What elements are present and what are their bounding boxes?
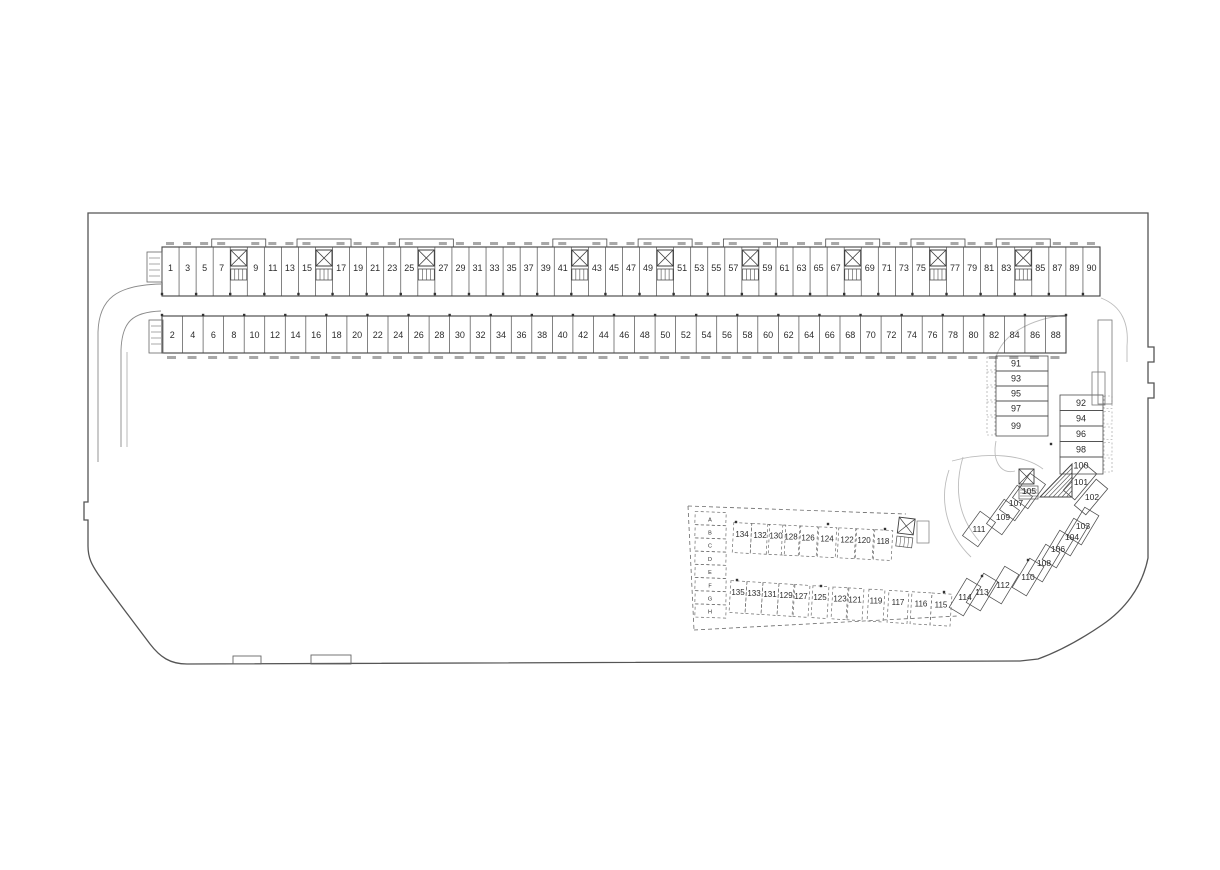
- column-marker: [263, 293, 265, 295]
- micro-text-mark: [537, 356, 546, 359]
- bottom-parking-row: 2468101214161820222426283032343638404244…: [149, 314, 1067, 359]
- column-marker: [943, 591, 945, 593]
- stall-number: 28: [434, 330, 444, 340]
- stall-number: 11: [268, 263, 277, 273]
- micro-text-mark: [229, 356, 238, 359]
- stall-number: 95: [1011, 389, 1021, 399]
- micro-text-mark: [831, 242, 839, 245]
- micro-text-mark: [507, 242, 515, 245]
- micro-text-mark: [578, 356, 587, 359]
- micro-text-mark: [916, 242, 924, 245]
- column-marker: [161, 293, 163, 295]
- stall-number: 82: [989, 330, 999, 340]
- stall-number: 29: [455, 263, 465, 273]
- stall-number: 38: [537, 330, 547, 340]
- column-marker: [243, 314, 245, 316]
- micro-text-mark: [434, 356, 443, 359]
- service-cell: [987, 402, 995, 415]
- micro-text-mark: [200, 242, 208, 245]
- stall-number: 41: [558, 263, 568, 273]
- column-marker: [468, 293, 470, 295]
- micro-text-mark: [516, 356, 525, 359]
- future-phase-lower-row: 135133131129127125123121119117116115: [729, 581, 952, 627]
- stall-number: 84: [1010, 330, 1020, 340]
- stall-number: 30: [455, 330, 465, 340]
- road-curb-outer: [98, 284, 161, 462]
- lift-stair-core: [742, 250, 758, 280]
- micro-text-mark: [439, 242, 447, 245]
- stall-number: 87: [1052, 263, 1062, 273]
- stall-number: 25: [404, 263, 414, 273]
- micro-text-mark: [968, 356, 977, 359]
- column-marker: [366, 314, 368, 316]
- stall-number: 8: [231, 330, 236, 340]
- letter-cell-label: G: [708, 597, 712, 603]
- column-marker: [843, 293, 845, 295]
- micro-text-mark: [331, 356, 340, 359]
- lane-edge: [1101, 298, 1127, 362]
- column-marker: [1014, 293, 1016, 295]
- stall-number: 44: [599, 330, 609, 340]
- micro-text-mark: [1036, 242, 1044, 245]
- stall-number: 48: [640, 330, 650, 340]
- stall-number: 122: [840, 535, 854, 544]
- micro-text-mark: [609, 242, 617, 245]
- micro-text-mark: [188, 356, 197, 359]
- stall-number: 103: [1076, 521, 1090, 531]
- micro-text-mark: [797, 242, 805, 245]
- stall-number: 12: [270, 330, 280, 340]
- stall-number: 67: [831, 263, 841, 273]
- letter-cell-label: D: [708, 557, 712, 563]
- micro-text-mark: [763, 242, 771, 245]
- lift-stair-core: [896, 517, 915, 548]
- micro-text-mark: [907, 356, 916, 359]
- micro-text-mark: [393, 356, 402, 359]
- column-marker: [407, 314, 409, 316]
- micro-text-mark: [475, 356, 484, 359]
- column-marker: [1082, 293, 1084, 295]
- hatched-triangle: [1040, 464, 1072, 497]
- row-end-label-block: [147, 252, 162, 282]
- stall-number: 1: [168, 263, 173, 273]
- stall-number: 13: [285, 263, 295, 273]
- site-boundary: [84, 213, 1154, 664]
- stall-number: 47: [626, 263, 636, 273]
- stall-number: 133: [747, 589, 761, 598]
- column-marker: [638, 293, 640, 295]
- micro-text-mark: [626, 242, 634, 245]
- stall-number: 55: [711, 263, 721, 273]
- hatch-line: [1044, 468, 1072, 497]
- column-marker: [604, 293, 606, 295]
- stall-number: 80: [969, 330, 979, 340]
- micro-text-mark: [270, 356, 279, 359]
- column-marker: [448, 314, 450, 316]
- letter-cell-label: A: [708, 517, 712, 523]
- column-marker: [490, 314, 492, 316]
- micro-text-mark: [948, 356, 957, 359]
- column-marker: [202, 314, 204, 316]
- column-marker: [1048, 293, 1050, 295]
- stall-number: 111: [973, 524, 986, 534]
- column-marker: [400, 293, 402, 295]
- column-marker: [695, 314, 697, 316]
- stall-number: 98: [1076, 444, 1086, 454]
- stall-number: 3: [185, 263, 190, 273]
- column-marker: [809, 293, 811, 295]
- stall-number: 102: [1085, 492, 1099, 502]
- micro-text-mark: [598, 356, 607, 359]
- lift-stair-core: [657, 250, 673, 280]
- storage-letter-strip: ABCDEFGH: [695, 511, 726, 618]
- entry-ramp-road: [98, 284, 161, 462]
- column-marker: [284, 314, 286, 316]
- column-marker: [325, 314, 327, 316]
- micro-text-mark: [701, 356, 710, 359]
- stall-number: 37: [524, 263, 534, 273]
- stall-number: 65: [814, 263, 824, 273]
- stall-number: 62: [784, 330, 794, 340]
- hatch-line: [1062, 486, 1072, 497]
- stall-number: 42: [578, 330, 588, 340]
- site-edge-box: [311, 655, 351, 664]
- hatch-line: [1058, 482, 1073, 498]
- micro-text-mark: [989, 356, 998, 359]
- stall-number: 130: [769, 532, 783, 541]
- stall-number: 58: [743, 330, 753, 340]
- stall-number: 24: [393, 330, 403, 340]
- stall-number: 114: [958, 592, 972, 602]
- micro-text-mark: [866, 356, 875, 359]
- right-wing-outer-column: 92949698100: [1060, 320, 1112, 474]
- column-marker: [741, 293, 743, 295]
- micro-text-mark: [681, 356, 690, 359]
- column-marker: [945, 293, 947, 295]
- stall-number: 40: [558, 330, 568, 340]
- stall-number: 90: [1086, 263, 1096, 273]
- micro-text-mark: [388, 242, 396, 245]
- column-marker: [1050, 443, 1052, 445]
- stall-number: 66: [825, 330, 835, 340]
- micro-text-mark: [557, 356, 566, 359]
- stall-number: 71: [882, 263, 892, 273]
- micro-text-mark: [712, 242, 720, 245]
- stall-number: 126: [801, 533, 815, 542]
- stall-number: 124: [820, 534, 834, 543]
- micro-text-mark: [455, 356, 464, 359]
- stall-number: 27: [438, 263, 448, 273]
- stall-number: 99: [1011, 421, 1021, 431]
- stall-number: 88: [1051, 330, 1061, 340]
- stall-number: 17: [336, 263, 346, 273]
- property-line: [84, 213, 1154, 664]
- micro-text-mark: [337, 242, 345, 245]
- future-phase-cluster: [688, 506, 958, 630]
- column-marker: [900, 314, 902, 316]
- stall-number: 120: [857, 536, 871, 545]
- stall-number: 123: [833, 594, 847, 603]
- lift-cross-icon: [897, 517, 915, 535]
- micro-text-mark: [968, 242, 976, 245]
- stall-number: 112: [996, 580, 1010, 590]
- stall-number: 116: [915, 599, 928, 608]
- stall-number: 22: [373, 330, 383, 340]
- column-marker: [736, 579, 738, 581]
- stall-number: 92: [1076, 398, 1086, 408]
- column-marker: [654, 314, 656, 316]
- micro-text-mark: [640, 356, 649, 359]
- micro-text-mark: [302, 242, 310, 245]
- stall-number: 57: [728, 263, 738, 273]
- column-marker: [884, 528, 886, 530]
- stall-number: 61: [779, 263, 789, 273]
- service-cell: [1104, 412, 1112, 425]
- stall-number: 5: [202, 263, 207, 273]
- column-marker: [502, 293, 504, 295]
- stall-number: 101: [1074, 477, 1088, 487]
- micro-text-mark: [352, 356, 361, 359]
- micro-text-mark: [882, 242, 890, 245]
- micro-text-mark: [1053, 242, 1061, 245]
- stall-number: 117: [892, 598, 905, 607]
- column-marker: [195, 293, 197, 295]
- micro-text-mark: [742, 356, 751, 359]
- stall-number: 70: [866, 330, 876, 340]
- stall-number: 96: [1076, 429, 1086, 439]
- stall-number: 109: [996, 512, 1010, 522]
- column-marker: [820, 585, 822, 587]
- micro-text-mark: [456, 242, 464, 245]
- stall-cell: [996, 386, 1048, 401]
- micro-text-mark: [1087, 242, 1095, 245]
- micro-text-mark: [541, 242, 549, 245]
- stall-number: 51: [677, 263, 687, 273]
- stall-number: 36: [517, 330, 527, 340]
- micro-text-mark: [251, 242, 259, 245]
- micro-text-mark: [372, 356, 381, 359]
- service-cell: [1104, 427, 1112, 440]
- micro-text-mark: [268, 242, 276, 245]
- micro-text-mark: [678, 242, 686, 245]
- stall-number: 107: [1009, 498, 1023, 508]
- micro-text-mark: [208, 356, 217, 359]
- micro-text-mark: [414, 356, 423, 359]
- micro-text-mark: [524, 242, 532, 245]
- column-marker: [983, 314, 985, 316]
- micro-text-mark: [783, 356, 792, 359]
- stall-number: 115: [935, 601, 948, 610]
- column-marker: [672, 293, 674, 295]
- service-cell: [917, 521, 929, 543]
- micro-text-mark: [985, 242, 993, 245]
- lane-edge: [945, 470, 971, 557]
- stall-number: 39: [541, 263, 551, 273]
- stall-number: 74: [907, 330, 917, 340]
- stall-number: 20: [352, 330, 362, 340]
- stall-number: 86: [1030, 330, 1040, 340]
- column-marker: [531, 314, 533, 316]
- stall-number: 78: [948, 330, 958, 340]
- stall-number: 119: [870, 597, 883, 606]
- stall-cell: [996, 416, 1048, 436]
- stall-number: 34: [496, 330, 506, 340]
- lift-stair-core: [930, 250, 946, 280]
- stall-number: 9: [253, 263, 258, 273]
- stall-number: 132: [753, 531, 767, 540]
- micro-text-mark: [1070, 242, 1078, 245]
- stall-number: 53: [694, 263, 704, 273]
- phase-outline: [688, 506, 906, 514]
- site-edge-box: [233, 656, 261, 664]
- stall-number: 23: [387, 263, 397, 273]
- top-parking-row: 1357911131517192123252729313335373941434…: [147, 239, 1100, 296]
- micro-text-mark: [405, 242, 413, 245]
- micro-text-mark: [899, 242, 907, 245]
- micro-text-mark: [695, 242, 703, 245]
- micro-text-mark: [824, 356, 833, 359]
- column-marker: [613, 314, 615, 316]
- stall-number: 83: [1001, 263, 1011, 273]
- column-marker: [911, 293, 913, 295]
- stall-number: 14: [291, 330, 301, 340]
- lift-stair-core: [845, 250, 861, 280]
- stall-number: 60: [763, 330, 773, 340]
- stall-number: 46: [619, 330, 629, 340]
- micro-text-mark: [729, 242, 737, 245]
- micro-text-mark: [865, 242, 873, 245]
- micro-text-mark: [814, 242, 822, 245]
- micro-text-mark: [644, 242, 652, 245]
- column-marker: [570, 293, 572, 295]
- micro-text-mark: [290, 356, 299, 359]
- stall-cell: [996, 401, 1048, 416]
- micro-text-mark: [183, 242, 191, 245]
- micro-text-mark: [927, 356, 936, 359]
- floor-plan-sheet: 1357911131517192123252729313335373941434…: [0, 0, 1220, 870]
- stall-number: 59: [762, 263, 772, 273]
- column-marker: [572, 314, 574, 316]
- stall-number: 79: [967, 263, 977, 273]
- stall-number: 16: [311, 330, 321, 340]
- micro-text-mark: [371, 242, 379, 245]
- letter-cell-label: H: [708, 610, 712, 616]
- stall-number: 19: [353, 263, 363, 273]
- lift-stair-core: [1015, 250, 1031, 280]
- stall-number: 21: [370, 263, 380, 273]
- right-wing-inner-column: 9193959799: [987, 356, 1052, 445]
- phase-outline: [694, 616, 958, 630]
- stall-number: 7: [219, 263, 224, 273]
- stall-number: 73: [899, 263, 909, 273]
- stall-number: 31: [473, 263, 483, 273]
- future-phase-upper-row: 134132130128126124122120118: [732, 523, 893, 561]
- stall-cell: [729, 581, 747, 614]
- stall-number: 94: [1076, 413, 1086, 423]
- stall-number: 54: [701, 330, 711, 340]
- stall-number: 128: [784, 532, 798, 541]
- stall-number: 6: [211, 330, 216, 340]
- stall-number: 110: [1021, 572, 1035, 582]
- column-marker: [775, 293, 777, 295]
- micro-text-mark: [490, 242, 498, 245]
- micro-text-mark: [845, 356, 854, 359]
- stair-step: [908, 537, 909, 547]
- stall-number: 43: [592, 263, 602, 273]
- stall-number: 2: [170, 330, 175, 340]
- column-marker: [536, 293, 538, 295]
- micro-text-mark: [660, 356, 669, 359]
- micro-text-mark: [592, 242, 600, 245]
- letter-cell-label: C: [708, 544, 712, 550]
- column-marker: [942, 314, 944, 316]
- stall-number: 81: [984, 263, 994, 273]
- stall-number: 56: [722, 330, 732, 340]
- stall-number: 134: [735, 530, 749, 539]
- column-marker: [1065, 314, 1067, 316]
- micro-text-mark: [496, 356, 505, 359]
- column-marker: [827, 523, 829, 525]
- micro-text-mark: [1030, 356, 1039, 359]
- column-marker: [331, 293, 333, 295]
- stall-number: 4: [190, 330, 195, 340]
- micro-text-mark: [473, 242, 481, 245]
- lift-stair-core: [231, 250, 247, 280]
- column-marker: [1027, 559, 1029, 561]
- column-marker: [859, 314, 861, 316]
- column-marker: [735, 521, 737, 523]
- stall-number: 91: [1011, 359, 1021, 369]
- column-marker: [1024, 314, 1026, 316]
- column-marker: [707, 293, 709, 295]
- stall-number: 76: [927, 330, 937, 340]
- stall-number: 45: [609, 263, 619, 273]
- lift-stair-core: [316, 250, 332, 280]
- row-end-label-block: [149, 320, 163, 353]
- stall-number: 121: [848, 595, 862, 604]
- stall-number: 69: [865, 263, 875, 273]
- column-marker: [229, 293, 231, 295]
- column-marker: [877, 293, 879, 295]
- lift-stair-core: [418, 250, 434, 280]
- stall-number: 33: [490, 263, 500, 273]
- service-cell: [1104, 458, 1112, 472]
- stall-number: 97: [1011, 404, 1021, 414]
- micro-text-mark: [886, 356, 895, 359]
- stall-number: 75: [916, 263, 926, 273]
- stall-number: 131: [763, 590, 777, 599]
- micro-text-mark: [249, 356, 258, 359]
- service-cell: [987, 372, 995, 385]
- stall-number: 32: [475, 330, 485, 340]
- parking-floor-plan-drawing: 1357911131517192123252729313335373941434…: [0, 0, 1220, 870]
- stall-number: 64: [804, 330, 814, 340]
- stall-number: 135: [731, 588, 745, 597]
- service-cell: [1104, 443, 1112, 456]
- micro-text-mark: [804, 356, 813, 359]
- letter-cell-label: E: [708, 570, 712, 576]
- column-marker: [161, 314, 163, 316]
- stall-number: 93: [1011, 374, 1021, 384]
- stall-number: 15: [302, 263, 312, 273]
- stall-number: 50: [660, 330, 670, 340]
- micro-text-mark: [722, 356, 731, 359]
- micro-text-mark: [217, 242, 225, 245]
- micro-text-mark: [1050, 356, 1059, 359]
- column-marker: [434, 293, 436, 295]
- stall-number: 77: [950, 263, 960, 273]
- column-marker: [736, 314, 738, 316]
